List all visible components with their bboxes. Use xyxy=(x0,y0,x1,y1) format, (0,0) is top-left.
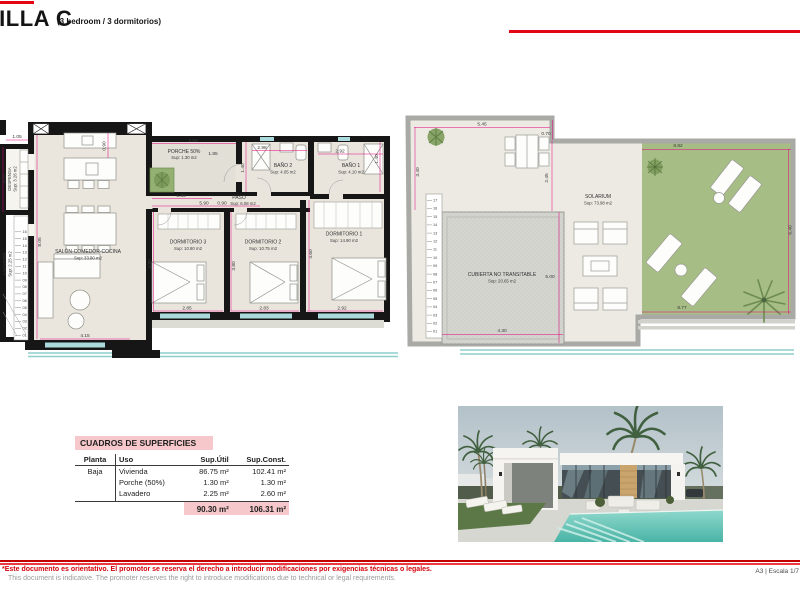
room-label: DORMITORIO 1 xyxy=(326,232,363,238)
sheet-scale-info: A3 | Escala 1/7 xyxy=(755,568,799,575)
dim-label: 8.82 xyxy=(673,143,683,149)
svg-text:05: 05 xyxy=(23,306,27,310)
room-area: Sup: 3.26 m2 xyxy=(13,166,18,192)
room-label: BAÑO 1 xyxy=(342,162,361,169)
shelving-icon xyxy=(20,150,28,208)
dim-label: 1.35 xyxy=(176,193,186,199)
dim-label: 5.00 xyxy=(545,274,555,280)
dim-label: 8.77 xyxy=(677,305,687,311)
cell-planta xyxy=(75,477,116,488)
dim-label: 2.92 xyxy=(337,306,347,312)
bed-icon-dorm3 xyxy=(152,262,206,303)
table-total-row: 90.30 m² 106.31 m² xyxy=(75,502,289,516)
corner-rule xyxy=(0,1,34,4)
svg-text:17: 17 xyxy=(433,199,437,203)
dim-label: 3.80 xyxy=(147,259,153,269)
cell-util: 1.30 m² xyxy=(184,477,232,488)
room-area: Sup: 2.25 m2 xyxy=(8,251,13,277)
dim-label: 0.70 xyxy=(541,131,551,137)
surfaces-table-title: CUADROS DE SUPERFICIES xyxy=(75,436,213,450)
room-label: SALÓN-COMEDOR-COCINA xyxy=(55,248,122,255)
dim-label: 3.40 xyxy=(415,167,421,177)
room-area: Sup: 4.10 m2 xyxy=(338,170,364,175)
plant-icon xyxy=(150,168,174,192)
svg-text:10: 10 xyxy=(23,271,27,275)
svg-text:12: 12 xyxy=(23,258,27,262)
room-area: Sup: 73.98 m2 xyxy=(584,201,613,206)
cell-const: 1.30 m² xyxy=(232,477,289,488)
svg-text:03: 03 xyxy=(433,313,437,317)
dim-label: 5.45 xyxy=(477,122,487,128)
svg-text:16: 16 xyxy=(23,230,27,234)
dim-label: 3.80 xyxy=(231,261,237,271)
col-uso: Uso xyxy=(116,454,185,466)
dim-label: 2.83 xyxy=(259,306,269,312)
pool xyxy=(554,510,723,542)
bush xyxy=(666,496,674,504)
room-area: Sup: 4.05 m2 xyxy=(270,170,296,175)
dim-label: 2.45 xyxy=(544,173,550,183)
dim-label: 0.90 xyxy=(217,201,227,207)
cell-planta xyxy=(75,488,116,502)
col-planta: Planta xyxy=(75,454,116,466)
room-area: Sup: 33.80 m2 xyxy=(74,256,103,261)
svg-text:15: 15 xyxy=(433,215,437,219)
svg-text:08: 08 xyxy=(433,272,437,276)
room-area: Sup: 1.30 m2 xyxy=(171,155,197,160)
surfaces-table: CUADROS DE SUPERFICIES Planta Uso Sup.Út… xyxy=(75,436,289,515)
room-label: SOLARIUM xyxy=(585,194,611,200)
dim-label: 1.40 xyxy=(240,163,246,173)
table-header-row: Planta Uso Sup.Útil Sup.Const. xyxy=(75,454,289,466)
dim-label: 2.98 xyxy=(257,145,267,151)
room-area: Sup: 10.75 m2 xyxy=(249,246,278,251)
dim-label: 4.15 xyxy=(80,333,90,339)
room-area: Sup: 10.80 m2 xyxy=(174,246,203,251)
pool-edge-lines xyxy=(28,353,398,357)
plan-sheet: VILLA C (3 bedroom / 3 dormitorios) xyxy=(0,0,800,600)
room-area: Sup: 20.65 m2 xyxy=(488,279,517,284)
svg-text:16: 16 xyxy=(433,207,437,211)
svg-text:01: 01 xyxy=(23,334,27,338)
disclaimer-es: *Este documento es orientativo. El promo… xyxy=(2,566,432,573)
svg-text:02: 02 xyxy=(433,322,437,326)
villa-3d-render xyxy=(458,406,723,542)
total-util: 90.30 m² xyxy=(184,502,232,516)
total-const: 106.31 m² xyxy=(232,502,289,516)
room-label: DORMITORIO 3 xyxy=(170,240,207,246)
room-label: LAVADERO xyxy=(2,252,7,275)
cell-const: 2.60 m² xyxy=(232,488,289,502)
bush xyxy=(595,497,605,507)
svg-text:13: 13 xyxy=(433,231,437,235)
cell-uso: Porche (50%) xyxy=(116,477,185,488)
cell-const: 102.41 m² xyxy=(232,466,289,478)
dim-label: 6.40 xyxy=(788,225,794,235)
svg-text:01: 01 xyxy=(433,330,437,334)
dim-label: 1.05 xyxy=(12,134,22,140)
dining-table-icon xyxy=(64,206,116,252)
roof-plan: 1716151413121110090807060504030201 xyxy=(402,110,800,360)
svg-text:07: 07 xyxy=(433,281,437,285)
dim-label: 5.90 xyxy=(199,201,209,207)
header-rule xyxy=(509,30,800,33)
disclaimer-en: This document is indicative. The promote… xyxy=(8,575,396,582)
ground-floor-plan: 16151413121110090807060504030201 xyxy=(0,84,402,368)
dim-label: 8.05 xyxy=(37,237,43,247)
svg-text:06: 06 xyxy=(23,299,27,303)
bed-icon-dorm1 xyxy=(332,258,386,300)
cell-planta: Baja xyxy=(75,466,116,478)
svg-text:12: 12 xyxy=(433,240,437,244)
svg-text:07: 07 xyxy=(23,292,27,296)
room-label: BAÑO 2 xyxy=(274,162,293,169)
dim-label: 1.85 xyxy=(208,151,218,157)
table-row: Porche (50%) 1.30 m² 1.30 m² xyxy=(75,477,289,488)
svg-text:10: 10 xyxy=(433,256,437,260)
svg-text:09: 09 xyxy=(433,264,437,268)
table-row: Baja Vivienda 86.75 m² 102.41 m² xyxy=(75,466,289,478)
svg-text:04: 04 xyxy=(23,313,27,317)
cell-util: 86.75 m² xyxy=(184,466,232,478)
dim-label: 2.92 xyxy=(335,149,345,155)
surfaces-table-grid: Planta Uso Sup.Útil Sup.Const. Baja Vivi… xyxy=(75,454,289,515)
svg-text:04: 04 xyxy=(433,305,437,309)
svg-text:05: 05 xyxy=(433,297,437,301)
room-area: Sup: 14.90 m2 xyxy=(330,238,359,243)
svg-text:13: 13 xyxy=(23,251,27,255)
svg-text:15: 15 xyxy=(23,237,27,241)
svg-text:11: 11 xyxy=(23,265,27,269)
svg-text:09: 09 xyxy=(23,278,27,282)
room-label: CUBIERTA NO TRANSITABLE xyxy=(468,272,537,278)
dim-label: 1.40 xyxy=(374,154,380,164)
bed-icon-dorm2 xyxy=(250,262,298,303)
footer-rule-bright xyxy=(0,563,800,565)
col-sup-const: Sup.Const. xyxy=(232,454,289,466)
terrace-strip xyxy=(152,320,384,328)
svg-text:06: 06 xyxy=(433,289,437,293)
page-subtitle: (3 bedroom / 3 dormitorios) xyxy=(57,17,161,26)
footer-rule-dark xyxy=(0,560,800,562)
room-label: DESPENSA xyxy=(7,167,12,191)
svg-text:11: 11 xyxy=(433,248,437,252)
room-area: Sup: 6.08 m2 xyxy=(230,201,256,206)
svg-text:08: 08 xyxy=(23,285,27,289)
cell-util: 2.25 m² xyxy=(184,488,232,502)
cell-uso: Vivienda xyxy=(116,466,185,478)
svg-text:14: 14 xyxy=(433,223,437,227)
car xyxy=(686,489,703,497)
dim-label: 0.90 xyxy=(102,141,108,151)
dim-label: 2.50 xyxy=(188,138,198,144)
svg-text:14: 14 xyxy=(23,244,27,248)
col-sup-util: Sup.Útil xyxy=(184,454,232,466)
table-row: Lavadero 2.25 m² 2.60 m² xyxy=(75,488,289,502)
room-label: DORMITORIO 2 xyxy=(245,240,282,246)
dim-label: 4.30 xyxy=(497,328,507,334)
dim-label: 2.85 xyxy=(182,306,192,312)
svg-text:03: 03 xyxy=(23,320,27,324)
cell-uso: Lavadero xyxy=(116,488,185,502)
dim-label: 4.60 xyxy=(308,249,314,259)
